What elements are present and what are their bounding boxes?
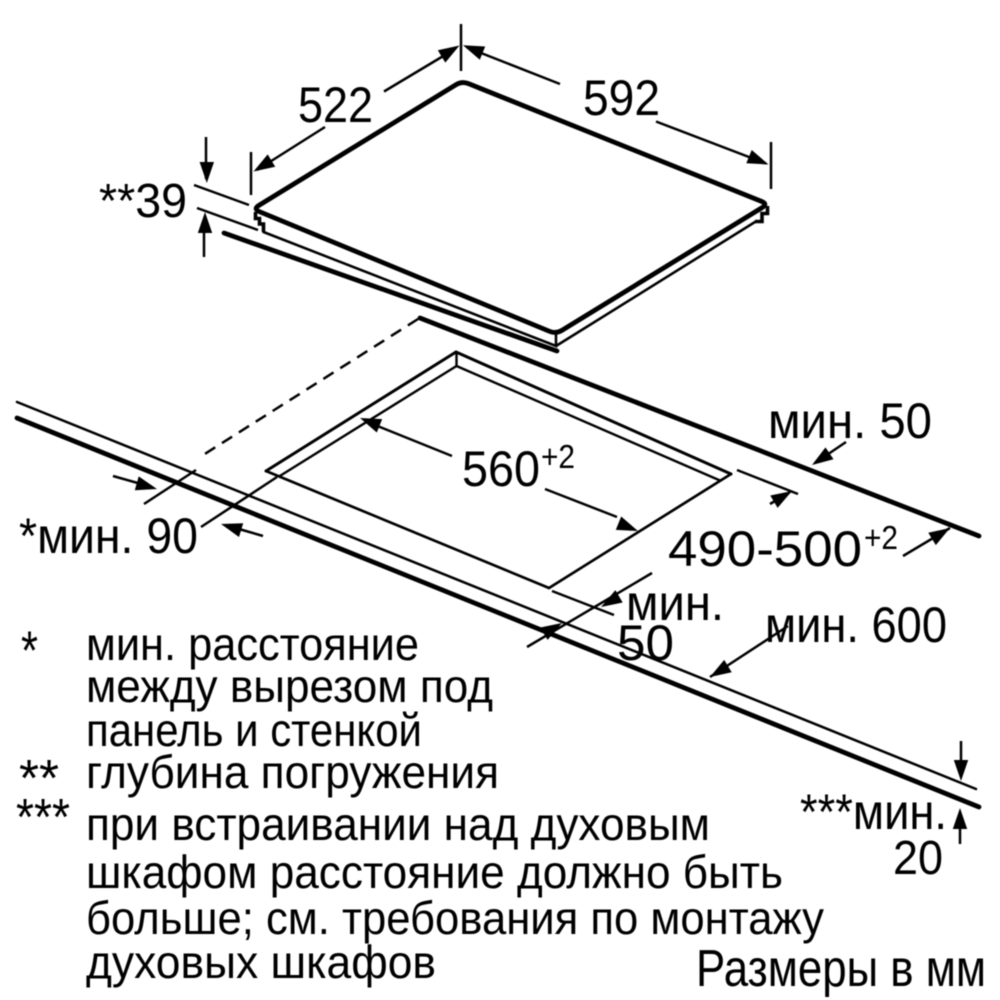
svg-text:560: 560	[462, 441, 540, 497]
svg-text:***: ***	[16, 789, 70, 847]
svg-text:+2: +2	[864, 519, 898, 556]
svg-text:50: 50	[617, 615, 674, 671]
svg-text:490-500: 490-500	[668, 521, 862, 577]
svg-text:*мин. 90: *мин. 90	[19, 508, 198, 564]
svg-text:+2: +2	[541, 438, 575, 475]
svg-text:20: 20	[893, 832, 943, 885]
svg-text:*: *	[21, 619, 38, 681]
svg-text:Размеры в мм: Размеры в мм	[696, 940, 986, 998]
svg-text:592: 592	[583, 70, 660, 126]
svg-text:мин. 50: мин. 50	[768, 393, 932, 449]
svg-text:522: 522	[298, 77, 373, 133]
svg-text:**39: **39	[99, 175, 187, 228]
svg-text:мин. 600: мин. 600	[765, 597, 947, 653]
